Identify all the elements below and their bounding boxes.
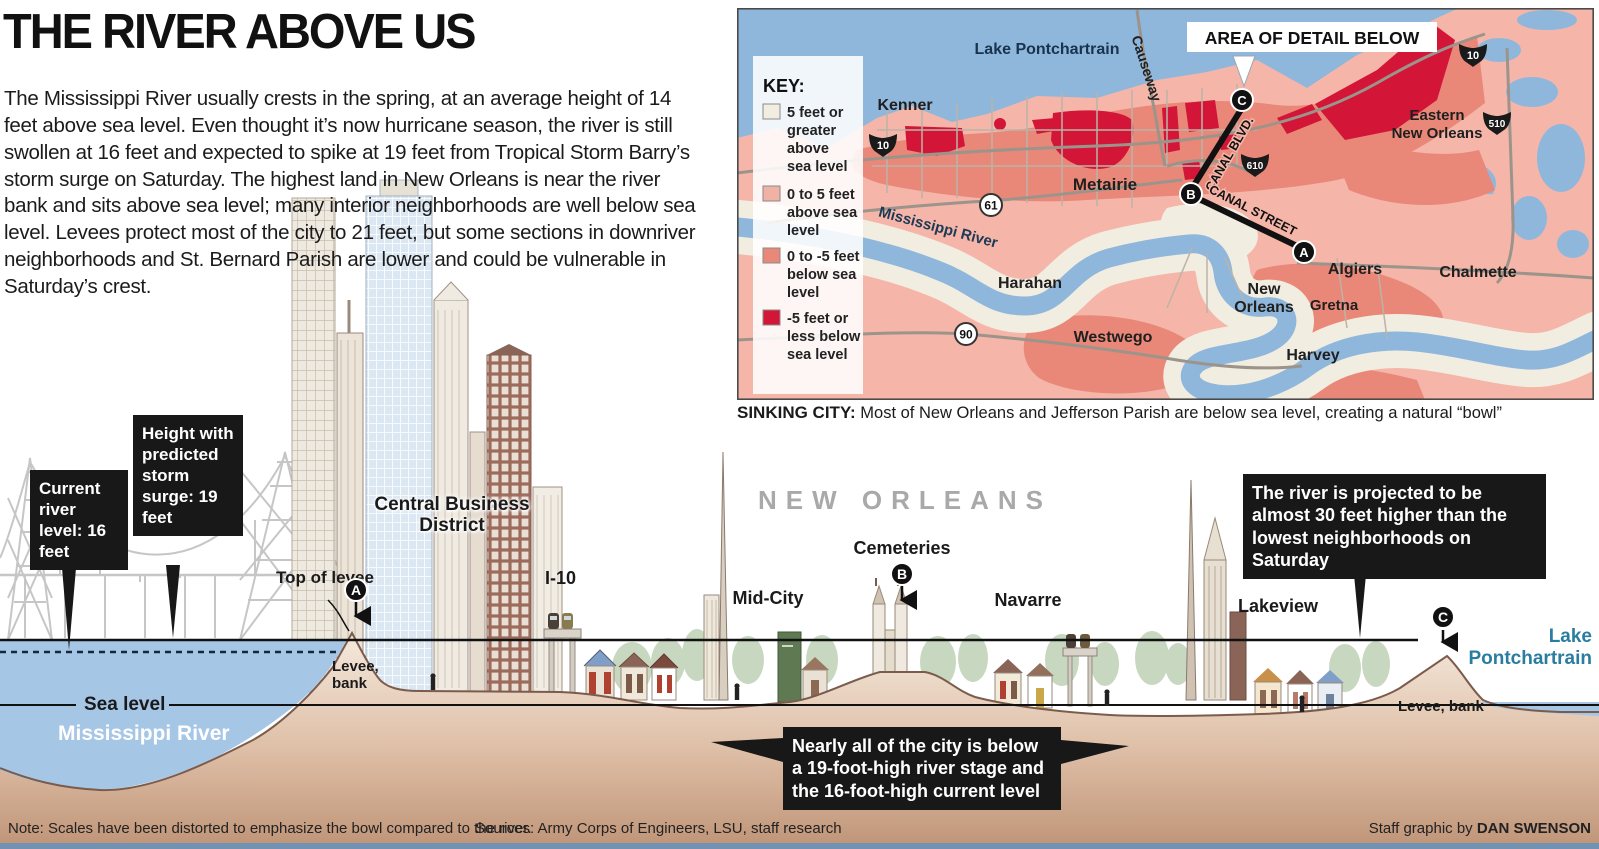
svg-text:10: 10 [877, 140, 889, 152]
key-swatch-3 [763, 310, 780, 325]
infographic-canvas: CANAL BLVD. CANAL STREET C B A 10 10 510… [0, 0, 1599, 849]
new-orleans-label-2: Orleans [1234, 299, 1294, 316]
mid-city-label: Mid-City [733, 588, 804, 609]
key-swatch-2 [763, 248, 780, 263]
i10-label: I-10 [545, 568, 576, 589]
map-marker-b: B [1180, 183, 1202, 205]
key-heading: KEY: [763, 76, 805, 96]
eastern-no-label-2: New Orleans [1392, 125, 1483, 142]
svg-text:C: C [1237, 93, 1247, 108]
kenner-label: Kenner [877, 97, 932, 114]
gretna-label: Gretna [1310, 297, 1359, 314]
mississippi-river-xsec-label: Mississippi River [58, 722, 230, 746]
bottom-border-strip [0, 843, 1599, 849]
callout-projection-pointer [1353, 564, 1367, 638]
map-caption-lead: SINKING CITY: [737, 403, 856, 422]
key-swatch-1 [763, 186, 780, 201]
map-caption-text: Most of New Orleans and Jefferson Parish… [856, 404, 1502, 422]
intro-paragraph: The Mississippi River usually crests in … [4, 86, 704, 301]
key-swatch-0 [763, 104, 780, 119]
metairie-label: Metairie [1073, 175, 1137, 194]
svg-text:10: 10 [1467, 50, 1479, 62]
page-title: THE RIVER ABOVE US [3, 2, 475, 59]
map-marker-a: A [1293, 241, 1315, 263]
callout-storm-surge: Height with predicted storm surge: 19 fe… [133, 415, 243, 536]
levee-bank-right-label: Levee, bank [1398, 698, 1484, 715]
footer-credit: Staff graphic by DAN SWENSON [1369, 820, 1591, 837]
cemeteries-label: Cemeteries [853, 538, 950, 559]
elevation-map: CANAL BLVD. CANAL STREET C B A 10 10 510… [737, 8, 1594, 400]
footer-sources: Sources: Army Corps of Engineers, LSU, s… [475, 820, 842, 837]
svg-text:510: 510 [1489, 119, 1506, 130]
sea-level-label: Sea level [80, 694, 169, 716]
credit-name: DAN SWENSON [1477, 820, 1591, 837]
lake-pontchartrain-xsec-label: LakePontchartrain [1462, 626, 1592, 670]
svg-text:A: A [1299, 245, 1309, 260]
svg-text:B: B [1186, 187, 1195, 202]
new-orleans-label-1: New [1248, 281, 1281, 298]
map-caption: SINKING CITY: Most of New Orleans and Je… [737, 403, 1597, 423]
lake-pontchartrain-label: Lake Pontchartrain [975, 41, 1120, 58]
footer-note: Note: Scales have been distorted to emph… [8, 820, 532, 837]
lakeview-label: Lakeview [1238, 596, 1318, 617]
callout-surge-pointer [166, 565, 180, 638]
area-of-detail-label: AREA OF DETAIL BELOW [1205, 28, 1420, 48]
new-orleans-title: NEW ORLEANS [758, 485, 1052, 516]
callout-projection: The river is projected to be almost 30 f… [1243, 474, 1546, 579]
svg-text:610: 610 [1247, 161, 1264, 172]
callout-current-level: Current river level: 16 feet [30, 470, 128, 570]
westwego-label: Westwego [1074, 329, 1153, 346]
map-key: KEY: 5 feet or greater above sea level 0… [753, 56, 864, 394]
chalmette-label: Chalmette [1439, 264, 1516, 281]
eastern-no-label-1: Eastern [1409, 107, 1464, 124]
xsec-marker-b: B [890, 562, 914, 586]
xsec-marker-c: C [1431, 605, 1455, 629]
algiers-label: Algiers [1328, 261, 1382, 278]
svg-text:90: 90 [959, 328, 973, 342]
map-marker-c: C [1231, 89, 1253, 111]
harahan-label: Harahan [998, 275, 1062, 292]
callout-current-pointer [62, 568, 76, 650]
harvey-label: Harvey [1286, 347, 1339, 364]
cbd-label: Central BusinessDistrict [367, 495, 537, 537]
levee-bank-left-label: Levee, bank [332, 658, 380, 693]
top-of-levee-label: Top of levee [276, 568, 328, 588]
svg-text:61: 61 [984, 199, 998, 213]
navarre-label: Navarre [994, 590, 1061, 611]
callout-bowl-wedges [705, 730, 1135, 770]
xsec-marker-a: A [344, 578, 368, 602]
